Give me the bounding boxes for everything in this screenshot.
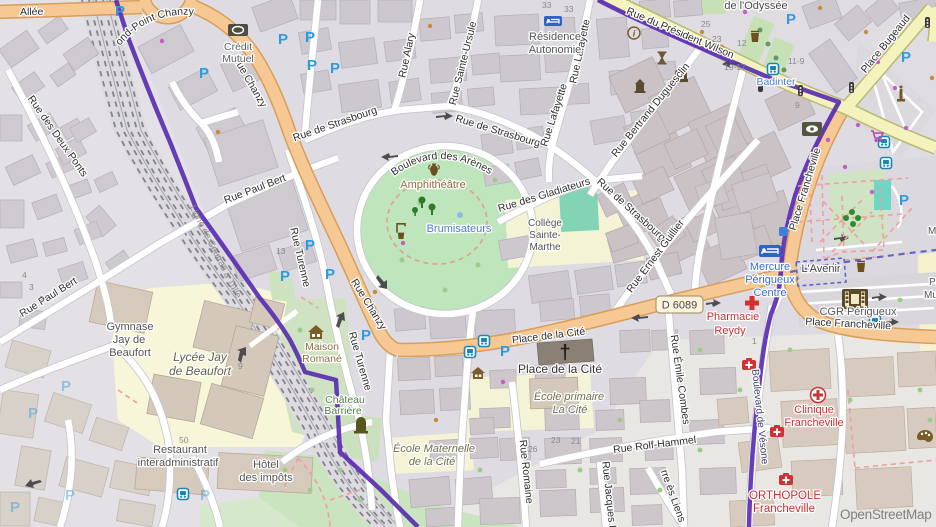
svg-text:26: 26	[528, 444, 538, 454]
svg-text:P: P	[325, 266, 335, 283]
svg-text:Sainte-: Sainte-	[529, 230, 561, 241]
svg-text:12: 12	[737, 38, 747, 48]
svg-text:P: P	[305, 237, 315, 254]
svg-text:P: P	[307, 57, 317, 74]
svg-text:23: 23	[712, 34, 722, 44]
svg-text:23: 23	[551, 435, 561, 445]
svg-text:Périgueux: Périgueux	[745, 274, 795, 286]
svg-text:Mun: Mun	[924, 290, 936, 301]
svg-text:École primaire: École primaire	[534, 390, 604, 403]
svg-text:P: P	[199, 65, 209, 82]
svg-text:Lycée Jay: Lycée Jay	[173, 350, 228, 364]
svg-text:P: P	[280, 268, 290, 285]
svg-text:Marthe: Marthe	[529, 242, 561, 253]
svg-text:9: 9	[795, 100, 800, 110]
svg-text:P: P	[330, 60, 340, 77]
svg-text:9: 9	[238, 361, 243, 371]
svg-text:P: P	[278, 31, 288, 48]
svg-text:50: 50	[179, 435, 189, 445]
svg-text:Gymnase: Gymnase	[106, 321, 153, 333]
svg-text:Barrière: Barrière	[324, 405, 362, 417]
svg-text:des impôts: des impôts	[239, 472, 293, 484]
svg-text:Restaurant: Restaurant	[153, 444, 207, 456]
svg-text:Reydy: Reydy	[714, 325, 746, 337]
svg-text:École Maternelle: École Maternelle	[393, 442, 475, 455]
svg-text:P: P	[899, 192, 909, 209]
svg-text:P: P	[200, 487, 210, 504]
svg-text:P: P	[901, 49, 911, 66]
svg-text:Francheville: Francheville	[784, 417, 843, 429]
svg-text:D 6089: D 6089	[662, 300, 697, 312]
svg-text:La Cité: La Cité	[553, 404, 588, 416]
svg-text:P: P	[115, 3, 125, 20]
svg-text:Po: Po	[929, 277, 936, 288]
svg-text:33: 33	[564, 4, 574, 14]
svg-text:Résidence: Résidence	[529, 31, 581, 43]
svg-text:interadministratif: interadministratif	[138, 457, 220, 469]
svg-text:Hôtel: Hôtel	[253, 459, 279, 471]
svg-text:Maison: Maison	[305, 341, 339, 353]
svg-text:Mutuel: Mutuel	[222, 53, 254, 65]
svg-text:Pharmacie: Pharmacie	[707, 311, 760, 323]
svg-text:Allée: Allée	[20, 6, 44, 18]
svg-text:P: P	[65, 487, 75, 504]
svg-text:de Beaufort: de Beaufort	[169, 364, 232, 378]
svg-text:Centre: Centre	[753, 287, 786, 299]
svg-text:de l'Odyssée: de l'Odyssée	[724, 0, 787, 12]
svg-text:P: P	[305, 29, 315, 46]
svg-text:Autonomie: Autonomie	[529, 44, 582, 56]
svg-text:P: P	[10, 499, 20, 516]
svg-text:Clinique: Clinique	[794, 404, 834, 416]
svg-text:P: P	[361, 327, 371, 344]
svg-text:2: 2	[39, 294, 44, 304]
svg-text:3: 3	[29, 282, 34, 292]
svg-text:13: 13	[276, 246, 286, 256]
svg-text:†: †	[559, 342, 570, 364]
svg-text:de la Cité: de la Cité	[409, 456, 455, 468]
svg-text:Crédit: Crédit	[224, 41, 252, 53]
svg-text:P: P	[786, 11, 796, 28]
svg-text:Jay de: Jay de	[113, 334, 145, 346]
svg-text:Mercure: Mercure	[750, 261, 790, 273]
svg-text:ORTHOPOLE: ORTHOPOLE	[749, 490, 821, 502]
svg-text:21: 21	[571, 436, 581, 446]
svg-text:Romané: Romané	[302, 353, 342, 365]
svg-text:11-9: 11-9	[788, 56, 805, 66]
svg-text:Badinter: Badinter	[756, 76, 796, 88]
svg-text:1: 1	[752, 336, 757, 346]
svg-text:M: M	[928, 226, 936, 237]
svg-text:25: 25	[701, 19, 711, 29]
svg-text:33: 33	[542, 0, 552, 10]
svg-text:P: P	[28, 405, 38, 422]
svg-text:Collège: Collège	[528, 218, 562, 229]
svg-text:OpenStreetMap: OpenStreetMap	[840, 507, 931, 522]
svg-text:Beaufort: Beaufort	[109, 347, 151, 359]
svg-text:Amphithéâtre: Amphithéâtre	[400, 179, 465, 191]
svg-text:P: P	[61, 378, 71, 395]
svg-text:Place de la Cité: Place de la Cité	[518, 362, 602, 376]
svg-text:L'Avenir: L'Avenir	[801, 263, 841, 275]
svg-text:19-17: 19-17	[724, 62, 746, 72]
svg-text:CGR Périgueux: CGR Périgueux	[819, 306, 897, 318]
svg-text:Francheville: Francheville	[753, 503, 815, 515]
svg-text:4: 4	[22, 270, 27, 280]
svg-text:P: P	[500, 343, 510, 360]
svg-text:Brumisateurs: Brumisateurs	[427, 223, 492, 235]
